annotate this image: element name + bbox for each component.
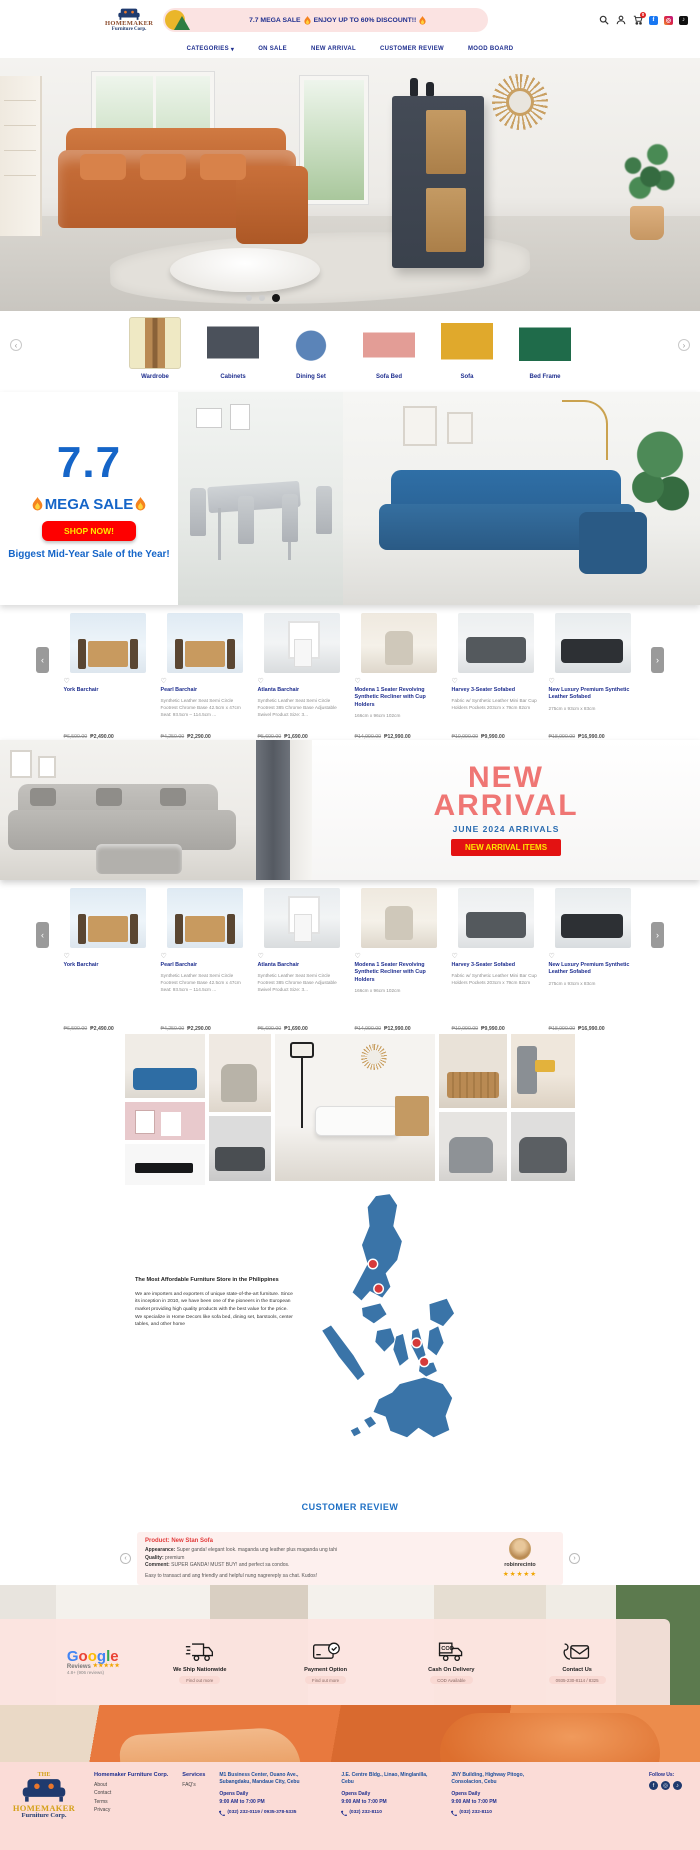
- header-icons: 0 f ◎ ♪: [598, 15, 688, 26]
- service-link[interactable]: 0935-230-8114 / 8325: [549, 1676, 606, 1684]
- product-image[interactable]: [167, 613, 243, 673]
- old-price: ₱18,990.00: [549, 1026, 576, 1032]
- product-prices: ₱4,250.00₱2,290.00: [161, 729, 249, 740]
- sale-price: ₱1,690.00: [284, 1026, 308, 1032]
- sheer-curtain: [290, 740, 312, 880]
- sofa-pillow: [30, 788, 56, 806]
- product-description: Synthetic Leather Seat Semi Circle Footr…: [161, 698, 249, 718]
- google-logo: Google: [67, 1649, 119, 1664]
- hero-shoe-cabinet: [392, 96, 484, 268]
- products-prev-arrow[interactable]: ‹: [36, 922, 49, 948]
- new-arrival-title-line2: ARRIVAL: [433, 792, 578, 820]
- product-description: 166cm x 96cm 102cm: [355, 988, 443, 995]
- review-appearance: Appearance: Super ganda! elegant look. m…: [145, 1547, 475, 1555]
- category-label: Sofa Bed: [376, 374, 402, 380]
- hero-sofa-chaise: [236, 166, 308, 244]
- product-description: 166cm x 96cm 102cm: [355, 713, 443, 720]
- wishlist-heart-icon[interactable]: ♡: [64, 677, 152, 685]
- branch-phone-number: (032) 232-8110: [349, 1810, 382, 1815]
- service-shipping: We Ship Nationwide Find out more: [154, 1640, 246, 1684]
- product-prices: ₱5,690.00₱1,690.00: [258, 729, 346, 740]
- product-prices: ₱5,690.00₱1,690.00: [258, 1021, 346, 1032]
- product-prices: ₱18,990.00₱16,990.00: [549, 1021, 637, 1032]
- branch-address: J.E. Centre Bldg., Linao, Minglanilla, C…: [341, 1772, 437, 1786]
- hero-plant: [612, 136, 682, 246]
- mega-sale-number: 7.7: [57, 438, 121, 488]
- category-label: Sofa: [460, 374, 473, 380]
- footer-branch-consolacion: JNY Building, Highway Pitogo, Consolacio…: [451, 1772, 547, 1850]
- dining-set-image: [285, 317, 337, 369]
- product-image[interactable]: [458, 888, 534, 948]
- wall-frame: [10, 750, 32, 778]
- gallery-photo-dark-sofa[interactable]: [209, 1116, 271, 1181]
- review-extra: Easy to transact and ang friendly and he…: [145, 1573, 475, 1579]
- homemaker-homepage: HOMEMAKER Furniture Corp. 7.7 MEGA SALE …: [0, 0, 700, 1850]
- product-description: Fabric w/ Synthetic Leather Mini Bar Cup…: [452, 973, 540, 987]
- product-image[interactable]: [458, 613, 534, 673]
- banner-decoration: [163, 8, 197, 32]
- gallery-photo-grey-recliner[interactable]: [439, 1112, 507, 1181]
- comment-label: Comment:: [145, 1562, 170, 1568]
- service-link[interactable]: COD Available: [430, 1676, 472, 1684]
- sale-price: ₱9,990.00: [481, 1026, 505, 1032]
- footer-logo[interactable]: THE HOMEMAKER Furniture Corp.: [8, 1772, 80, 1850]
- wall-frame: [403, 406, 437, 446]
- footer-branch-mandaue: M1 Business Center, Ouano Ave., Subangda…: [219, 1772, 327, 1850]
- cod-truck-icon: COD: [436, 1640, 466, 1664]
- tiktok-icon[interactable]: ♪: [673, 1781, 682, 1790]
- mega-sale-text-panel: 7.7 MEGA SALE SHOP NOW! Biggest Mid-Year…: [0, 392, 178, 605]
- old-price: ₱6,590.00: [64, 1026, 88, 1032]
- gallery-photo-sofabed-lamp[interactable]: [275, 1034, 435, 1181]
- on-sale-carousel: ‹ ♡ York Barchair ₱6,590.00₱2,490.00 ♡ P…: [0, 605, 700, 740]
- product-description: 275cm x 93cm x 83cm: [549, 706, 637, 713]
- mood-board-gallery: [0, 1032, 700, 1185]
- product-image[interactable]: [555, 613, 631, 673]
- category-dining-set[interactable]: Dining Set: [285, 317, 337, 380]
- old-price: ₱10,990.00: [452, 1026, 479, 1032]
- lamp-pole: [301, 1056, 303, 1128]
- appearance-label: Appearance:: [145, 1547, 175, 1553]
- product-prices: ₱6,590.00₱2,490.00: [64, 1021, 152, 1032]
- hero-window-center: [300, 76, 368, 204]
- sale-price: ₱16,990.00: [578, 1026, 605, 1032]
- dark-curtain: [256, 740, 290, 880]
- product-card[interactable]: ♡ New Luxury Premium Synthetic Leather S…: [549, 613, 637, 740]
- sale-banner-text: 7.7 MEGA SALE ENJOY UP TO 60% DISCOUNT!!: [197, 16, 478, 25]
- review-next-arrow[interactable]: ›: [569, 1553, 580, 1564]
- flame-icon: [419, 16, 426, 25]
- blue-sofa-photo: [343, 392, 700, 605]
- service-title: Contact Us: [562, 1667, 592, 1673]
- gallery-photo-dark-recliner[interactable]: [511, 1112, 575, 1181]
- dining-chair: [190, 488, 206, 536]
- branch-hours: 9:00 AM to 7:00 PM: [341, 1799, 437, 1805]
- product-description: Synthetic Leather Seat Semi Circle Footr…: [258, 973, 346, 993]
- branch-opens-label: Opens Daily: [451, 1791, 547, 1797]
- mega-sale-banner: 7.7 MEGA SALE SHOP NOW! Biggest Mid-Year…: [0, 392, 700, 605]
- grey-sofa-photo: [0, 740, 312, 880]
- product-card[interactable]: ♡ New Luxury Premium Synthetic Leather S…: [549, 888, 637, 1032]
- table-leg: [218, 508, 221, 560]
- old-price: ₱4,250.00: [161, 1026, 185, 1032]
- footer-link-privacy[interactable]: Privacy: [94, 1807, 168, 1813]
- branch-address: JNY Building, Highway Pitogo, Consolacio…: [451, 1772, 547, 1786]
- product-image[interactable]: [361, 613, 437, 673]
- dining-set-photo: [178, 392, 343, 605]
- product-description: Fabric w/ Synthetic Leather Mini Bar Cup…: [452, 698, 540, 712]
- wall-frame: [38, 756, 56, 778]
- product-card[interactable]: ♡ Pearl Barchair Synthetic Leather Seat …: [161, 888, 249, 1032]
- branch-hours: 9:00 AM to 7:00 PM: [451, 1799, 547, 1805]
- product-prices: ₱4,250.00₱2,290.00: [161, 1021, 249, 1032]
- cart-icon[interactable]: 0: [632, 15, 643, 26]
- phone-icon: [219, 1810, 225, 1816]
- reviewer: robinrecinto ★★★★★: [485, 1538, 555, 1579]
- service-payment: Payment Option Find out more: [280, 1640, 372, 1684]
- wishlist-heart-icon[interactable]: ♡: [452, 952, 540, 960]
- about-text: The Most Affordable Furniture Store in t…: [135, 1277, 293, 1329]
- appearance-text: Super ganda! elegant look. maganda ung l…: [175, 1547, 337, 1553]
- round-mirror: [361, 1044, 387, 1070]
- category-wardrobe[interactable]: Wardrobe: [129, 317, 181, 380]
- cart-count-badge: 0: [640, 12, 646, 18]
- grey-ottoman: [96, 844, 182, 874]
- payment-card-icon: [311, 1640, 341, 1664]
- carousel-dot[interactable]: [246, 295, 252, 301]
- product-prices: ₱10,990.00₱9,990.00: [452, 729, 540, 740]
- wishlist-heart-icon[interactable]: ♡: [161, 677, 249, 685]
- gallery-photo-bed-yellow-pillows[interactable]: [511, 1034, 575, 1108]
- hero-coffee-table: [170, 248, 320, 292]
- product-name: Pearl Barchair: [161, 962, 249, 969]
- products-next-arrow[interactable]: ›: [651, 647, 664, 673]
- service-link[interactable]: Find out more: [305, 1676, 346, 1684]
- product-name: Modena 1 Seater Revolving Synthetic Recl…: [355, 962, 443, 984]
- product-name: Pearl Barchair: [161, 687, 249, 694]
- new-arrival-items-button[interactable]: NEW ARRIVAL ITEMS: [451, 839, 561, 856]
- footer-follow: Follow Us: f ◎ ♪: [649, 1772, 686, 1850]
- branch-phone[interactable]: (032) 232-8110: [451, 1810, 547, 1816]
- gallery-photo-wood-daybed[interactable]: [439, 1034, 507, 1108]
- product-prices: ₱6,590.00₱2,490.00: [64, 729, 152, 740]
- sale-price: ₱2,490.00: [90, 1026, 114, 1032]
- new-arrival-subtitle: JUNE 2024 ARRIVALS: [453, 824, 560, 834]
- phone-icon: [451, 1810, 457, 1816]
- product-name: Harvey 3-Seater Sofabed: [452, 962, 540, 969]
- products-prev-arrow[interactable]: ‹: [36, 647, 49, 673]
- nav-categories-label: CATEGORIES: [187, 46, 229, 52]
- about-paragraph-1: We are importers and exporters of unique…: [135, 1291, 293, 1313]
- dining-chair: [238, 496, 254, 544]
- sunburst-mirror: [492, 74, 548, 130]
- sofa-pillow: [160, 788, 186, 806]
- quality-label: Quality:: [145, 1555, 164, 1561]
- carousel-dot[interactable]: [259, 295, 265, 301]
- bed-frame-image: [519, 317, 571, 369]
- product-name: Atlanta Barchair: [258, 962, 346, 969]
- carousel-dot-active[interactable]: [272, 294, 280, 302]
- gallery-photo-coffee-table[interactable]: [125, 1144, 205, 1185]
- white-sofa-bed: [315, 1106, 399, 1136]
- wishlist-heart-icon[interactable]: ♡: [355, 952, 443, 960]
- sofa-image: [441, 317, 493, 369]
- about-paragraph-2: We specialize in Home Decors like sofa b…: [135, 1314, 293, 1329]
- mega-sale-title-text: MEGA SALE: [45, 496, 134, 513]
- branch-phone[interactable]: (032) 232-0119 / 0935-378-5335: [219, 1810, 327, 1816]
- footer-link-terms[interactable]: Terms: [94, 1799, 168, 1805]
- customer-review-section: CUSTOMER REVIEW ‹ Product: New Stan Sofa…: [0, 1460, 700, 1585]
- review-comment: Comment: SUPER GANDA! MUST BUY! and perf…: [145, 1562, 475, 1570]
- branch-phone-number: (032) 232-0119 / 0935-378-5335: [227, 1810, 296, 1815]
- arc-lamp: [562, 400, 608, 460]
- branch-opens-label: Opens Daily: [219, 1791, 327, 1797]
- sofa-blanket: [119, 1726, 301, 1762]
- product-card[interactable]: ♡ Modena 1 Seater Revolving Synthetic Re…: [355, 613, 443, 740]
- branch-address: M1 Business Center, Ouano Ave., Subangda…: [219, 1772, 327, 1786]
- sofa-pillow: [96, 788, 122, 806]
- product-description: 275cm x 93cm x 83cm: [549, 981, 637, 988]
- footer-link-contact[interactable]: Contact: [94, 1790, 168, 1796]
- hero-sofa-cushion: [140, 154, 186, 180]
- sale-banner[interactable]: 7.7 MEGA SALE ENJOY UP TO 60% DISCOUNT!!: [163, 8, 488, 32]
- wall-frame: [447, 412, 473, 444]
- facebook-icon[interactable]: f: [649, 1781, 658, 1790]
- review-quality: Quality: premium: [145, 1555, 475, 1563]
- product-card[interactable]: ♡ York Barchair ₱6,590.00₱2,490.00: [64, 888, 152, 1032]
- about-title: The Most Affordable Furniture Store in t…: [135, 1277, 293, 1283]
- footer-branch-minglanilla: J.E. Centre Bldg., Linao, Minglanilla, C…: [341, 1772, 437, 1850]
- footer: THE HOMEMAKER Furniture Corp. Homemaker …: [0, 1762, 700, 1850]
- review-card: Product: New Stan Sofa Appearance: Super…: [137, 1532, 563, 1585]
- branch-hours: 9:00 AM to 7:00 PM: [219, 1799, 327, 1805]
- old-price: ₱5,690.00: [258, 1026, 282, 1032]
- footer-company-column: Homemaker Furniture Corp. About Contact …: [94, 1772, 168, 1850]
- wishlist-heart-icon[interactable]: ♡: [161, 952, 249, 960]
- category-cabinets[interactable]: Cabinets: [207, 317, 259, 380]
- wishlist-heart-icon[interactable]: ♡: [549, 677, 637, 685]
- product-description: Synthetic Leather Seat Semi Circle Footr…: [258, 698, 346, 718]
- branch-phone[interactable]: (032) 232-8110: [341, 1810, 437, 1816]
- services-strip: Google Reviews★★★★★ 4.8+ (906 reviews) W…: [0, 1585, 700, 1705]
- wishlist-heart-icon[interactable]: ♡: [355, 677, 443, 685]
- sale-price: ₱12,990.00: [384, 1026, 411, 1032]
- google-reviews-badge[interactable]: Google Reviews★★★★★ 4.8+ (906 reviews): [67, 1649, 120, 1676]
- account-icon[interactable]: [615, 15, 626, 26]
- category-sofa-bed[interactable]: Sofa Bed: [363, 317, 415, 380]
- google-letter: o: [79, 1648, 88, 1665]
- new-arrival-title-line1: NEW: [433, 764, 578, 792]
- follow-us-label: Follow Us:: [649, 1772, 674, 1778]
- google-rating: 4.8+ (906 reviews): [67, 1671, 104, 1676]
- philippines-map: [295, 1185, 485, 1457]
- carousel-dots: [246, 294, 280, 302]
- product-card[interactable]: ♡ Modena 1 Seater Revolving Synthetic Re…: [355, 888, 443, 1032]
- mega-sale-subtitle: Biggest Mid-Year Sale of the Year!: [8, 549, 170, 560]
- service-contact: Contact Us 0935-230-8114 / 8325: [531, 1640, 623, 1684]
- product-image[interactable]: [264, 613, 340, 673]
- footer-logo-line2: Furniture Corp.: [21, 1813, 66, 1820]
- flame-icon: [32, 497, 43, 511]
- wood-desk: [395, 1096, 429, 1136]
- nav-categories[interactable]: CATEGORIES▾: [187, 46, 235, 53]
- hero-bookshelf: [0, 76, 42, 236]
- gallery-photo-blue-sofa[interactable]: [125, 1034, 205, 1098]
- service-link[interactable]: Find out more: [179, 1676, 220, 1684]
- footer-link-faq[interactable]: FAQ's: [182, 1782, 205, 1788]
- nav-on-sale[interactable]: ON SALE: [258, 46, 287, 52]
- customer-review-heading: CUSTOMER REVIEW: [0, 1460, 700, 1512]
- footer-company-name: Homemaker Furniture Corp.: [94, 1772, 168, 1778]
- product-prices: ₱14,990.00₱12,990.00: [355, 729, 443, 740]
- wall-art: [230, 404, 250, 430]
- sofa-logo-icon: [18, 1778, 70, 1804]
- review-product: Product: New Stan Sofa: [145, 1538, 475, 1544]
- products-next-arrow[interactable]: ›: [651, 922, 664, 948]
- instagram-icon[interactable]: ◎: [661, 1781, 670, 1790]
- wishlist-heart-icon[interactable]: ♡: [549, 952, 637, 960]
- dining-chair: [316, 486, 332, 534]
- service-title: Cash On Delivery: [428, 1667, 474, 1673]
- about-map-section: The Most Affordable Furniture Store in t…: [0, 1185, 700, 1460]
- shipping-truck-icon: [185, 1640, 215, 1664]
- branch-opens-label: Opens Daily: [341, 1791, 437, 1797]
- wishlist-heart-icon[interactable]: ♡: [258, 677, 346, 685]
- old-price: ₱14,990.00: [355, 1026, 382, 1032]
- sale-price: ₱2,290.00: [187, 1026, 211, 1032]
- service-title: We Ship Nationwide: [173, 1667, 226, 1673]
- branch-phone-number: (032) 232-8110: [459, 1810, 492, 1815]
- product-card[interactable]: ♡ Atlanta Barchair Synthetic Leather Sea…: [258, 888, 346, 1032]
- facebook-icon[interactable]: f: [649, 16, 658, 25]
- product-image[interactable]: [167, 888, 243, 948]
- product-image[interactable]: [361, 888, 437, 948]
- category-prev-arrow[interactable]: ‹: [10, 339, 22, 351]
- reviewer-avatar: [509, 1538, 531, 1560]
- chevron-down-icon: ▾: [231, 46, 234, 53]
- review-prev-arrow[interactable]: ‹: [120, 1553, 131, 1564]
- orange-sofa-photo-strip: [0, 1705, 700, 1762]
- footer-services-title: Services: [182, 1772, 205, 1778]
- new-arrival-text-panel: NEW ARRIVAL JUNE 2024 ARRIVALS NEW ARRIV…: [312, 740, 700, 880]
- quality-text: premium: [164, 1555, 185, 1561]
- main-nav: CATEGORIES▾ ON SALE NEW ARRIVAL CUSTOMER…: [0, 40, 700, 58]
- sale-text-part1: 7.7 MEGA SALE: [249, 17, 301, 24]
- instagram-icon[interactable]: ◎: [664, 16, 673, 25]
- category-label: Cabinets: [220, 374, 245, 380]
- wall-art: [196, 408, 222, 428]
- product-card[interactable]: ♡ Harvey 3-Seater Sofabed Fabric w/ Synt…: [452, 888, 540, 1032]
- footer-services-column: Services FAQ's: [182, 1772, 205, 1850]
- google-stars: ★★★★★: [93, 1664, 120, 1670]
- sofa-logo-icon: [116, 8, 142, 21]
- product-name: Harvey 3-Seater Sofabed: [452, 687, 540, 694]
- product-name: New Luxury Premium Synthetic Leather Sof…: [549, 962, 637, 977]
- service-title: Payment Option: [304, 1667, 347, 1673]
- nav-mood-board[interactable]: MOOD BOARD: [468, 46, 513, 52]
- cabinets-image: [207, 317, 259, 369]
- review-stars: ★★★★★: [503, 1570, 537, 1578]
- flame-icon: [304, 16, 311, 25]
- category-label: Dining Set: [296, 374, 326, 380]
- hero-sofa-cushion: [200, 154, 246, 180]
- contact-phone-mail-icon: [562, 1640, 592, 1664]
- green-triangle-shape: [174, 16, 190, 30]
- mega-sale-title: MEGA SALE: [32, 496, 147, 513]
- category-next-arrow[interactable]: ›: [678, 339, 690, 351]
- product-name: New Luxury Premium Synthetic Leather Sof…: [549, 687, 637, 702]
- nav-new-arrival[interactable]: NEW ARRIVAL: [311, 46, 356, 52]
- category-carousel: ‹ Wardrobe Cabinets Dining Set Sofa Bed …: [0, 311, 700, 392]
- hero-sofa-cushion: [80, 154, 126, 180]
- phone-icon: [341, 1810, 347, 1816]
- category-label: Wardrobe: [141, 374, 169, 380]
- wishlist-heart-icon[interactable]: ♡: [258, 952, 346, 960]
- gallery-photo-armchair[interactable]: [209, 1034, 271, 1112]
- logo-text-line2: Furniture Corp.: [112, 27, 147, 32]
- tiktok-icon[interactable]: ♪: [679, 16, 688, 25]
- product-image[interactable]: [264, 888, 340, 948]
- product-name: Atlanta Barchair: [258, 687, 346, 694]
- shop-now-button[interactable]: SHOP NOW!: [42, 521, 136, 541]
- wardrobe-image: [129, 317, 181, 369]
- product-name: York Barchair: [64, 687, 152, 694]
- google-letter: G: [67, 1648, 79, 1665]
- dining-chair: [282, 494, 298, 542]
- header: HOMEMAKER Furniture Corp. 7.7 MEGA SALE …: [0, 0, 700, 40]
- wishlist-heart-icon[interactable]: ♡: [452, 677, 540, 685]
- reviewer-name: robinrecinto: [504, 1562, 535, 1568]
- comment-text: SUPER GANDA! MUST BUY! and perfect sa co…: [170, 1562, 290, 1568]
- new-arrival-carousel: ‹ ♡ York Barchair ₱6,590.00₱2,490.00 ♡ P…: [0, 880, 700, 1032]
- product-card[interactable]: ♡ York Barchair ₱6,590.00₱2,490.00: [64, 613, 152, 740]
- sale-text-part2: ENJOY UP TO 60% DISCOUNT!!: [314, 17, 417, 24]
- site-logo[interactable]: HOMEMAKER Furniture Corp.: [105, 8, 153, 33]
- search-icon[interactable]: [598, 15, 609, 26]
- gallery-photo-wall-frames[interactable]: [125, 1102, 205, 1140]
- google-reviews-label: Reviews: [67, 1664, 91, 1670]
- category-label: Bed Frame: [529, 374, 560, 380]
- svg-text:COD: COD: [442, 1646, 455, 1652]
- category-bed-frame[interactable]: Bed Frame: [519, 317, 571, 380]
- sofa-bed-image: [363, 317, 415, 369]
- plant: [630, 422, 690, 552]
- sofa-arm: [440, 1713, 660, 1762]
- footer-link-about[interactable]: About: [94, 1782, 168, 1788]
- product-prices: ₱10,990.00₱9,990.00: [452, 1021, 540, 1032]
- wishlist-heart-icon[interactable]: ♡: [64, 952, 152, 960]
- hero-carousel: [0, 58, 700, 311]
- product-name: Modena 1 Seater Revolving Synthetic Recl…: [355, 687, 443, 709]
- product-prices: ₱14,990.00₱12,990.00: [355, 1021, 443, 1032]
- new-arrival-title: NEW ARRIVAL: [433, 764, 578, 819]
- product-image[interactable]: [70, 888, 146, 948]
- product-name: York Barchair: [64, 962, 152, 969]
- product-card[interactable]: ♡ Harvey 3-Seater Sofabed Fabric w/ Synt…: [452, 613, 540, 740]
- service-cod: COD Cash On Delivery COD Available: [405, 1640, 497, 1684]
- product-image[interactable]: [555, 888, 631, 948]
- services-band: Google Reviews★★★★★ 4.8+ (906 reviews) W…: [0, 1619, 670, 1705]
- category-sofa[interactable]: Sofa: [441, 317, 493, 380]
- new-arrival-banner: NEW ARRIVAL JUNE 2024 ARRIVALS NEW ARRIV…: [0, 740, 700, 880]
- nav-customer-review[interactable]: CUSTOMER REVIEW: [380, 46, 444, 52]
- product-card[interactable]: ♡ Pearl Barchair Synthetic Leather Seat …: [161, 613, 249, 740]
- product-prices: ₱18,990.00₱16,990.00: [549, 729, 637, 740]
- product-description: Synthetic Leather Seat Semi Circle Footr…: [161, 973, 249, 993]
- product-image[interactable]: [70, 613, 146, 673]
- flame-icon: [135, 497, 146, 511]
- product-card[interactable]: ♡ Atlanta Barchair Synthetic Leather Sea…: [258, 613, 346, 740]
